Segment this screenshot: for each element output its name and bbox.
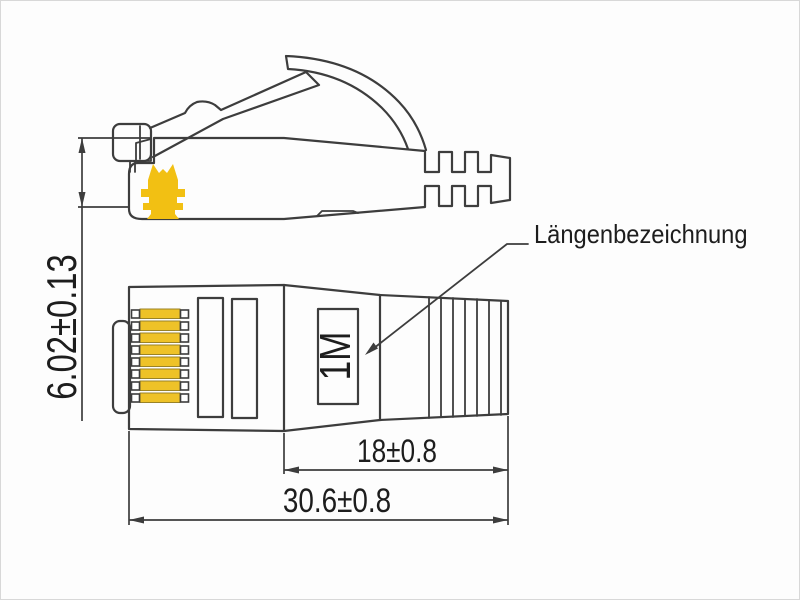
front-step-lines	[130, 161, 135, 172]
arrowhead-right	[493, 517, 508, 524]
leader-arrowhead	[365, 343, 378, 356]
contact-bar	[140, 321, 180, 331]
contact-row	[132, 345, 189, 355]
dimension-boot-length: 18±0.8	[284, 433, 508, 474]
dim-boot-length-text: 18±0.8	[357, 435, 437, 470]
latch-tab-plan	[113, 321, 130, 413]
latch-release-arc	[286, 56, 426, 150]
technical-drawing-page: 6.02±0.13	[0, 0, 800, 600]
contact-pad-right	[181, 322, 189, 330]
contact-pad-right	[181, 358, 189, 366]
rj45-plug-technical-drawing: 6.02±0.13	[1, 1, 800, 600]
contact-pad-left	[132, 310, 140, 318]
contact-row	[132, 333, 189, 343]
contact-pad-right	[181, 394, 189, 402]
contact-pad-left	[132, 382, 140, 390]
plug-body-outline	[129, 138, 510, 219]
length-marking-text: 1M	[311, 332, 360, 381]
contact-bar	[140, 357, 180, 367]
contact-bar	[140, 369, 180, 379]
boot-ribs	[429, 297, 501, 418]
contact-row	[132, 357, 189, 367]
contact-row	[132, 369, 189, 379]
contact-row	[132, 393, 189, 403]
conductor-window-left	[198, 298, 223, 417]
contact-pad-right	[181, 310, 189, 318]
arrowhead-down	[79, 192, 86, 207]
contact-bar	[140, 333, 180, 343]
bottom-view: 1M	[113, 285, 508, 431]
contact-pad-left	[132, 370, 140, 378]
side-view	[113, 56, 510, 219]
gold-contacts	[132, 309, 189, 403]
contact-row	[132, 321, 189, 331]
contact-pad-right	[181, 334, 189, 342]
annotation-label: Längenbezeichnung	[534, 221, 748, 249]
contact-bar	[140, 345, 180, 355]
contact-pad-left	[132, 358, 140, 366]
contact-pad-left	[132, 322, 140, 330]
conductor-window-right	[232, 299, 257, 418]
contact-bar	[140, 393, 180, 403]
contact-row	[132, 309, 189, 319]
contact-pad-left	[132, 334, 140, 342]
contact-pad-left	[132, 394, 140, 402]
arrowhead-left	[129, 517, 144, 524]
contact-pad-right	[181, 382, 189, 390]
latch-front-tab	[113, 124, 151, 161]
contact-bar	[140, 309, 180, 319]
arrowhead-up	[79, 138, 86, 153]
dim-total-length-text: 30.6±0.8	[283, 481, 391, 519]
arrowhead-right	[493, 467, 508, 474]
dim-front-height-text: 6.02±0.13	[38, 254, 85, 399]
contact-pad-right	[181, 346, 189, 354]
contact-row	[132, 381, 189, 391]
length-marking-callout: Längenbezeichnung	[365, 221, 748, 355]
brand-logo-icon	[141, 164, 185, 219]
latch-arm	[150, 72, 319, 157]
contact-bar	[140, 381, 180, 391]
contact-pad-right	[181, 370, 189, 378]
arrowhead-left	[284, 467, 299, 474]
contact-pad-left	[132, 346, 140, 354]
